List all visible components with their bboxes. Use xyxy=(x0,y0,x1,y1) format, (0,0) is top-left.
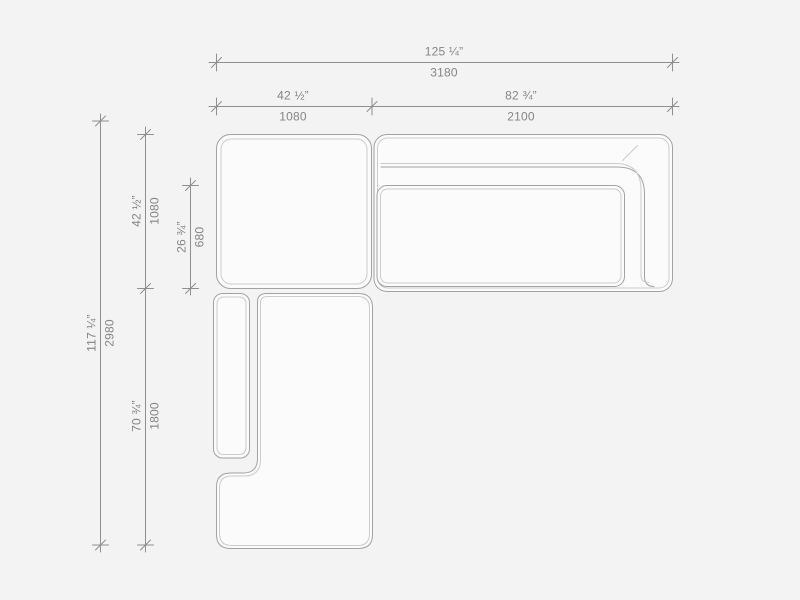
dim-seat-depth-mm: 680 xyxy=(194,227,207,248)
dim-corner-depth-mm: 1080 xyxy=(149,197,162,225)
dim-corner-depth-inches: 42 ½” xyxy=(131,195,144,227)
dim-overall-depth-mm: 2980 xyxy=(104,319,117,347)
dim-chaise-length-inches: 70 ¾” xyxy=(131,400,144,432)
sofa-plan-svg xyxy=(0,0,800,600)
dim-corner-width-inches: 42 ½” xyxy=(277,90,309,103)
dim-line-corner-depth-chaise-length xyxy=(138,127,154,552)
dim-overall-width-inches: 125 ¼” xyxy=(425,46,464,59)
dim-corner-width-mm: 1080 xyxy=(279,111,307,124)
dim-sofa-width-inches: 82 ¾” xyxy=(505,90,537,103)
sofa-dimension-drawing: 125 ¼” 3180 42 ½” 1080 82 ¾” 2100 117 ¼”… xyxy=(0,0,800,600)
dim-sofa-width-mm: 2100 xyxy=(507,111,535,124)
sofa-seat-cushion-outline xyxy=(377,186,625,287)
dim-overall-width-mm: 3180 xyxy=(430,67,458,80)
dim-chaise-length-mm: 1800 xyxy=(149,402,162,430)
dim-overall-depth-inches: 117 ¼” xyxy=(86,314,99,352)
chaise-armrest-outline xyxy=(214,294,250,459)
dim-seat-depth-inches: 26 ¾” xyxy=(176,221,189,253)
corner-module-outline xyxy=(217,135,372,289)
